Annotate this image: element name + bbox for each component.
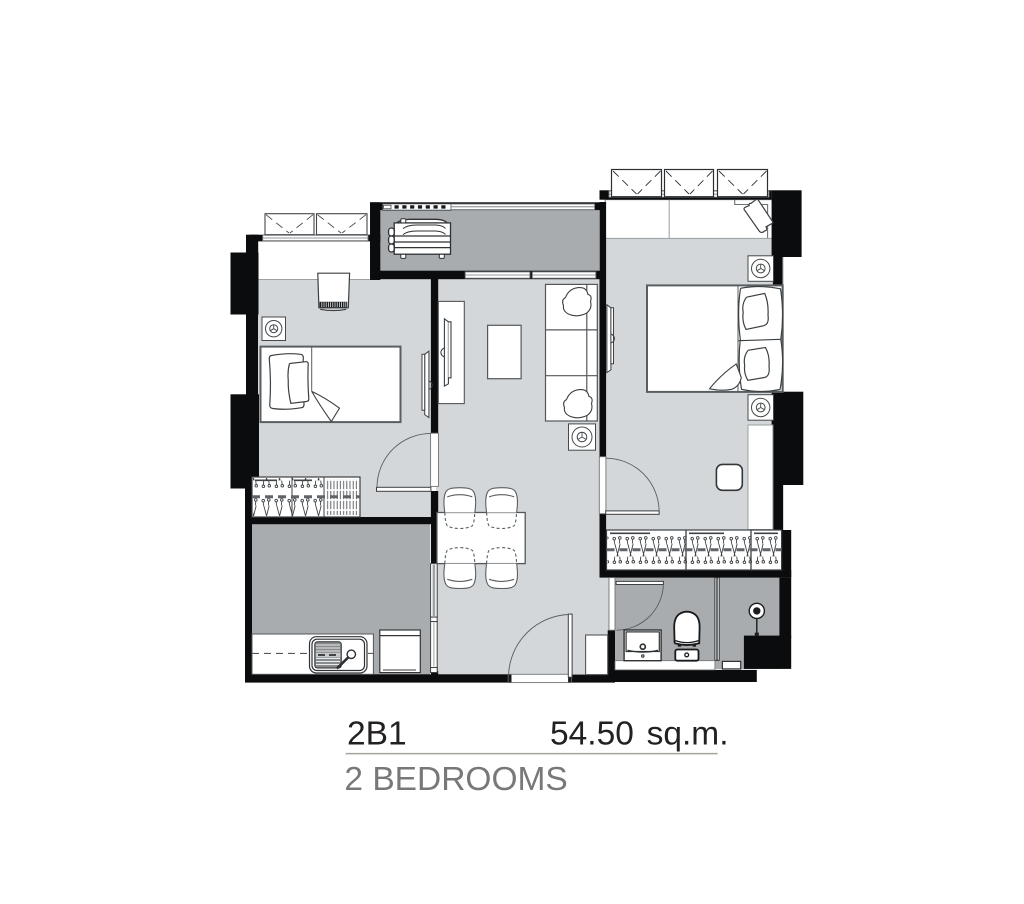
svg-text:2 BEDROOMS: 2 BEDROOMS [344, 761, 567, 798]
svg-text:2B1: 2B1 [347, 716, 407, 753]
svg-text:sq.m.: sq.m. [647, 716, 729, 753]
svg-text:54.50: 54.50 [550, 716, 634, 753]
